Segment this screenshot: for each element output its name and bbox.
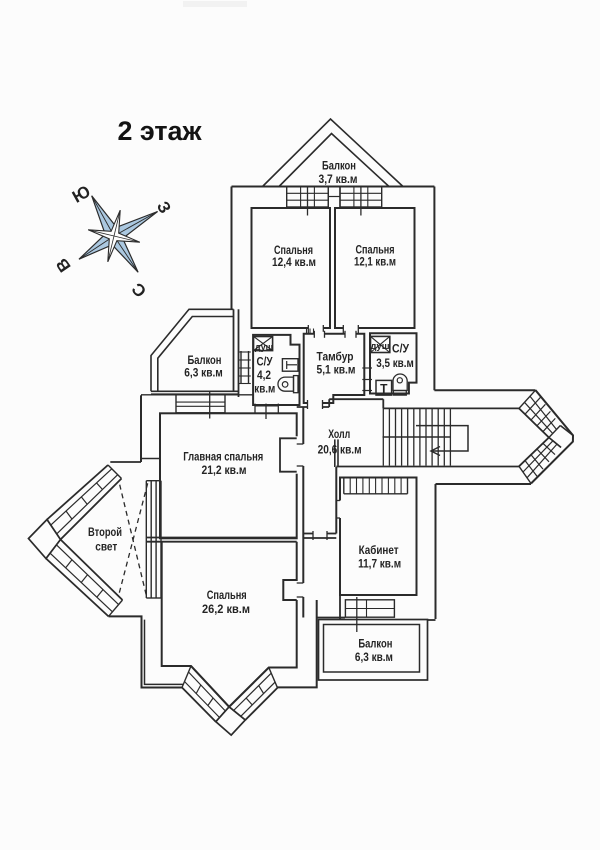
svg-text:3,5 кв.м: 3,5 кв.м [376,356,414,370]
svg-text:20,6 кв.м: 20,6 кв.м [318,443,362,457]
svg-text:кв.м: кв.м [254,382,275,396]
svg-text:С/У: С/У [392,341,409,355]
svg-text:26,2 кв.м: 26,2 кв.м [202,602,250,616]
svg-text:душ: душ [371,341,390,352]
svg-text:свет: свет [95,540,117,554]
svg-text:5,1 кв.м: 5,1 кв.м [317,363,356,377]
svg-text:21,2 кв.м: 21,2 кв.м [202,463,247,477]
svg-text:T: T [380,382,388,396]
svg-text:3,7 кв.м: 3,7 кв.м [319,172,358,186]
svg-text:4,2: 4,2 [257,368,271,382]
svg-text:Кабинет: Кабинет [359,543,399,557]
svg-text:Тамбур: Тамбур [317,350,354,364]
svg-text:Главная спальня: Главная спальня [183,450,263,464]
svg-text:Балкон: Балкон [322,159,356,173]
svg-text:Балкон: Балкон [358,637,392,651]
svg-text:6,3 кв.м: 6,3 кв.м [355,650,393,664]
svg-text:11,7 кв.м: 11,7 кв.м [358,557,401,571]
svg-text:12,4 кв.м: 12,4 кв.м [272,255,316,269]
svg-text:6,3 кв.м: 6,3 кв.м [184,366,223,380]
svg-text:Второй: Второй [88,525,122,539]
svg-text:12,1 кв.м: 12,1 кв.м [354,255,396,269]
svg-text:Холл: Холл [328,427,350,441]
svg-text:Спальня: Спальня [207,588,247,602]
svg-text:душ: душ [255,342,273,352]
svg-text:С/У: С/У [257,355,273,369]
svg-text:2 этаж: 2 этаж [118,116,203,146]
